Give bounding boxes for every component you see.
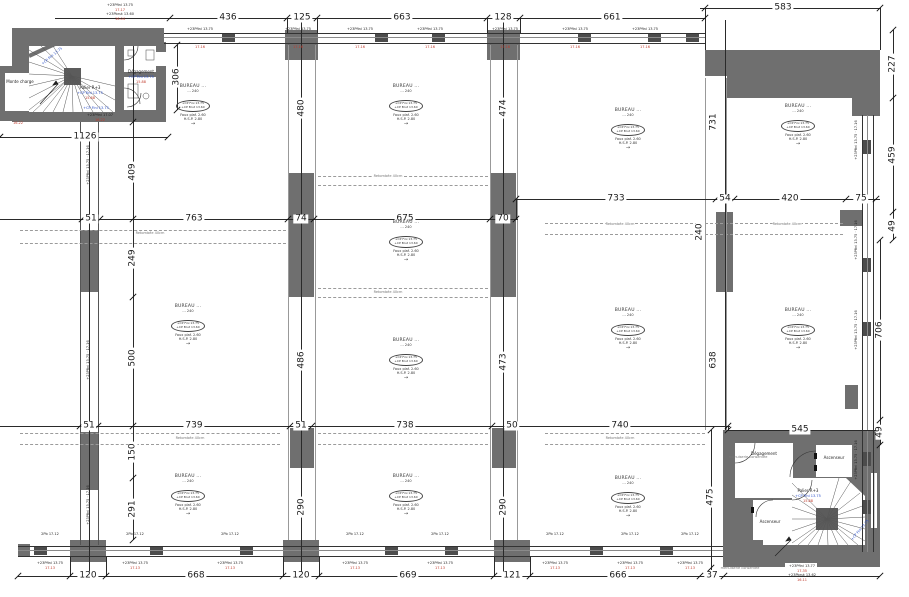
- dimension-label: 739: [183, 422, 204, 431]
- level-oval: +CP Fini 13.75+CP Brut 13.60: [389, 354, 422, 366]
- level-oval: +CP Fini 13.75+CP Brut 13.60: [176, 100, 209, 112]
- window-note: 2Pb 17.12: [221, 532, 239, 536]
- dimension-line: [705, 8, 706, 50]
- dimension-label: 666: [607, 572, 628, 581]
- room-label-bureau: BUREAU ...... 240+CP Fini 13.75+CP Brut …: [376, 220, 436, 263]
- beam-label: Retombée 40cm: [773, 222, 802, 226]
- level-oval: +CP Fini 13.75+CP Brut 13.60: [781, 120, 814, 132]
- window-band-right: [862, 115, 874, 552]
- window-note: +23Pfini 13.75: [342, 561, 368, 565]
- dimension-label: 227: [889, 53, 898, 74]
- window-band-top: [164, 33, 705, 44]
- dimension-line: [880, 8, 881, 50]
- dimension-label: 545: [789, 426, 810, 435]
- dimension-line: [516, 199, 880, 200]
- room-label-bureau: BUREAU ...... 240+CP Fini 13.75+CP Brut …: [158, 304, 218, 347]
- level-note-blue: +CP Fini 13.75: [83, 106, 109, 110]
- beam-dashed-line: [20, 444, 280, 445]
- dimension-label: 128: [492, 14, 513, 23]
- level-oval: +CP Fini 13.75+CP Brut 13.60: [389, 490, 422, 502]
- level-oval: +CP Fini 13.75+CP Brut 13.60: [611, 492, 644, 504]
- dimension-label: 120: [77, 572, 98, 581]
- room-label-degagement: Dégagement: [121, 70, 161, 75]
- room-label-palier: Palier R+3: [788, 489, 828, 494]
- window-note: 17.16: [570, 45, 580, 49]
- dimension-label: 37: [704, 572, 719, 581]
- level-note-red: 15.88: [803, 499, 813, 503]
- level-note-red: 15.88: [136, 80, 146, 84]
- dimension-label: 740: [609, 422, 630, 431]
- dimension-label: 661: [601, 14, 622, 23]
- level-oval: +CP Fini 13.75+CP Brut 13.60: [171, 320, 204, 332]
- dimension-label: 500: [129, 347, 138, 368]
- window-note: 17.13: [130, 566, 140, 570]
- dimension-line: [0, 219, 518, 220]
- window-note: +23Pfini 13.75 · 17.16: [854, 440, 858, 479]
- window-note: 17.16: [500, 45, 510, 49]
- room-label-bureau: BUREAU ...... 240+CP Fini 13.75+CP Brut …: [163, 84, 223, 127]
- level-oval: +CP Fini 13.75+CP Brut 13.60: [389, 100, 422, 112]
- window-note: +23Pfini 13.75: [122, 561, 148, 565]
- dimension-label: 290: [500, 496, 509, 517]
- window-note: 2Pb 17.12: [346, 532, 364, 536]
- level-annotation: 16.11: [797, 578, 807, 582]
- dimension-label: 121: [501, 572, 522, 581]
- window-band-bottom-inner: [18, 550, 723, 551]
- dimension-label: 638: [710, 349, 719, 370]
- level-note-blue: +CP Fini 13.75: [77, 91, 103, 95]
- dimension-label: 583: [772, 4, 793, 13]
- beam-dashed-line: [20, 243, 286, 244]
- window-note: 17.13: [625, 566, 635, 570]
- dimension-label: 49: [876, 424, 885, 439]
- window-note: +23Pfini 13.75 · 17.16: [854, 120, 858, 159]
- window-note: +23Pfini 13.75: [617, 561, 643, 565]
- dimension-line: [520, 18, 521, 33]
- window-note: 17.13: [550, 566, 560, 570]
- dimension-label: 70: [495, 215, 510, 224]
- dimension-tick: [129, 536, 136, 543]
- dimension-label: 420: [779, 195, 800, 204]
- window-note: +23Pfini 13.75 · 17.16: [854, 220, 858, 259]
- window-note: 2Pb 17.12: [681, 532, 699, 536]
- dimension-label: 663: [391, 14, 412, 23]
- dimension-label: 50: [504, 422, 519, 431]
- window-band-bottom: [18, 546, 723, 557]
- menuiserie-note: menuiserie conservée: [721, 566, 760, 570]
- column-band-2: [288, 45, 316, 540]
- level-note-blue: +CP Fini 13.75: [128, 75, 154, 79]
- window-note: +23Pfini 13.75 · 17.16: [86, 145, 90, 184]
- beam-dashed-line: [318, 444, 488, 445]
- room-label-bureau: BUREAU ...... 240+CP Fini 13.75+CP Brut …: [768, 308, 828, 351]
- level-oval: +CP Fini 13.75+CP Brut 13.60: [611, 324, 644, 336]
- window-note: 17.16: [425, 45, 435, 49]
- beam-dashed-line: [545, 433, 705, 434]
- wall-pier: [705, 50, 880, 76]
- window-note: +23Pfini 13.75: [417, 27, 443, 31]
- dimension-label: 249: [129, 247, 138, 268]
- window-note: 17.13: [45, 566, 55, 570]
- dimension-label: 475: [707, 486, 716, 507]
- window-note: 2Pb 17.12: [621, 532, 639, 536]
- window-note: +23Pfini 13.75: [562, 27, 588, 31]
- dimension-line: [487, 18, 488, 33]
- beam-label: Retombée 40cm: [176, 436, 205, 440]
- window-note: +23Pfini 13.75: [347, 27, 373, 31]
- room-label-bureau: BUREAU ...... 240+CP Fini 13.75+CP Brut …: [376, 338, 436, 381]
- window-note: +23Pfini 13.75 · 17.16: [86, 485, 90, 524]
- dimension-label: 290: [298, 496, 307, 517]
- dimension-label: 54: [717, 195, 732, 204]
- window-note: 17.13: [225, 566, 235, 570]
- window-note: +23Pfini 13.75: [187, 27, 213, 31]
- window-note: 17.13: [350, 566, 360, 570]
- wall-pier: [840, 210, 862, 226]
- floor-plan-canvas: Retombée 40cmRetombée 40cmRetombée 40cmR…: [0, 0, 909, 597]
- elevator-1-room: [816, 445, 852, 477]
- dimension-label: 240: [696, 221, 705, 242]
- wall-segment: [12, 28, 164, 44]
- dimension-label: 51: [83, 215, 98, 224]
- room-label-bureau: BUREAU ...... 240+CP Fini 13.75+CP Brut …: [598, 476, 658, 519]
- window-note: +23Pfini 13.75: [677, 561, 703, 565]
- window-note: 2Pb 17.12: [41, 532, 59, 536]
- window-note: +23Pfini 13.75: [632, 27, 658, 31]
- dimension-label: 1126: [72, 133, 99, 142]
- wall-pier: [852, 98, 880, 116]
- beam-dashed-line: [318, 288, 488, 289]
- dimension-label: 738: [394, 422, 415, 431]
- dimension-tick: [164, 133, 171, 140]
- dimension-label: 668: [185, 572, 206, 581]
- menuiserie-note: menuiserie conservée: [729, 455, 768, 459]
- room-label-monte-charge: Monte charge: [0, 80, 40, 85]
- room-label-bureau: BUREAU ...... 240+CP Fini 13.75+CP Brut …: [768, 104, 828, 147]
- dimension-label: 49: [889, 218, 898, 233]
- dimension-line: [880, 240, 881, 445]
- window-note: 17.16: [195, 45, 205, 49]
- dimension-label: 473: [500, 351, 509, 372]
- dimension-label: 409: [129, 161, 138, 182]
- dimension-label: 763: [183, 215, 204, 224]
- beam-label: Retombée 40cm: [374, 290, 403, 294]
- level-note-red: 15.88: [85, 96, 95, 100]
- dimension-label: 51: [81, 422, 96, 431]
- window-band-right-inner: [867, 115, 868, 552]
- dimension-label: 459: [889, 144, 898, 165]
- room-label-bureau: BUREAU ...... 240+CP Fini 13.75+CP Brut …: [158, 474, 218, 517]
- dimension-label: 291: [129, 498, 138, 519]
- beam-dashed-line: [318, 297, 488, 298]
- dimension-label: 74: [293, 215, 308, 224]
- window-note: +23Pfini 13.75: [427, 561, 453, 565]
- beam-label: Retombée 40cm: [606, 222, 635, 226]
- column-band-3: [490, 45, 518, 540]
- beam-label: Retombée 40cm: [606, 436, 635, 440]
- window-note: +23Pfini 13.75: [37, 561, 63, 565]
- beam-dashed-line: [318, 433, 488, 434]
- room-label-bureau: BUREAU ...... 240+CP Fini 13.75+CP Brut …: [376, 474, 436, 517]
- beam-dashed-line: [318, 176, 488, 177]
- window-note: 17.13: [685, 566, 695, 570]
- dimension-line: [725, 20, 726, 430]
- window-note: 2Pb 17.12: [126, 532, 144, 536]
- dimension-label: 120: [290, 572, 311, 581]
- window-note: +23Pfini 13.75: [217, 561, 243, 565]
- beam-label: Retombée 40cm: [136, 231, 165, 235]
- level-annotation: 16.04: [115, 17, 125, 21]
- dimension-label: 474: [500, 97, 509, 118]
- window-note: 17.16: [355, 45, 365, 49]
- room-label-bureau: BUREAU ...... 240+CP Fini 13.75+CP Brut …: [376, 84, 436, 127]
- dimension-label: 731: [710, 111, 719, 132]
- window-note: 17.16: [640, 45, 650, 49]
- level-annotation: 16.22: [95, 118, 105, 122]
- window-note: +23Pfini 13.75: [492, 27, 518, 31]
- dimension-label: 486: [298, 349, 307, 370]
- wall-pier: [727, 76, 880, 98]
- beam-dashed-line: [318, 185, 488, 186]
- window-note: +23Pfini 13.75: [285, 27, 311, 31]
- beam-label: Retombée 40cm: [374, 174, 403, 178]
- dimension-label: 125: [291, 14, 312, 23]
- dimension-line: [18, 576, 880, 577]
- room-label-bureau: BUREAU ...... 240+CP Fini 13.75+CP Brut …: [598, 308, 658, 351]
- room-label-palier: Palier R+3: [70, 86, 110, 91]
- dimension-label: 150: [129, 441, 138, 462]
- level-note-blue: +CP Fini 13.75: [795, 494, 821, 498]
- level-oval: +CP Fini 13.75+CP Brut 13.60: [611, 124, 644, 136]
- beam-dashed-line: [545, 444, 705, 445]
- dimension-label: 75: [853, 195, 868, 204]
- dimension-tick: [889, 236, 896, 243]
- dimension-label: 436: [217, 14, 238, 23]
- level-oval: +CP Fini 13.75+CP Brut 13.60: [389, 236, 422, 248]
- dimension-tick: [876, 572, 883, 579]
- dimension-label: 480: [298, 97, 307, 118]
- window-note: 17.16: [293, 45, 303, 49]
- window-note: 2Pb 17.12: [431, 532, 449, 536]
- level-oval: +CP Fini 13.75+CP Brut 13.60: [781, 324, 814, 336]
- dimension-label: 733: [605, 195, 626, 204]
- window-band-top-inner: [164, 37, 705, 38]
- level-annotation: 16.22: [13, 121, 23, 125]
- dimension-label: 706: [876, 319, 885, 340]
- room-label-ascenseur: Ascenseur: [814, 456, 854, 461]
- window-note: 2Pb 17.12: [546, 532, 564, 536]
- dimension-label: 51: [293, 422, 308, 431]
- dimension-line: [317, 18, 318, 33]
- room-label-bureau: BUREAU ...... 240+CP Fini 13.75+CP Brut …: [598, 108, 658, 151]
- dimension-label: 669: [397, 572, 418, 581]
- window-note: 17.13: [435, 566, 445, 570]
- room-label-ascenseur: Ascenseur: [750, 520, 790, 525]
- window-note: +23Pfini 13.75 · 17.16: [86, 340, 90, 379]
- window-note: +23Pfini 13.75: [542, 561, 568, 565]
- window-note: +23Pfini 13.75 · 17.16: [854, 310, 858, 349]
- wall-pier: [845, 385, 858, 409]
- level-oval: +CP Fini 13.75+CP Brut 13.60: [171, 490, 204, 502]
- beam-dashed-line: [20, 433, 280, 434]
